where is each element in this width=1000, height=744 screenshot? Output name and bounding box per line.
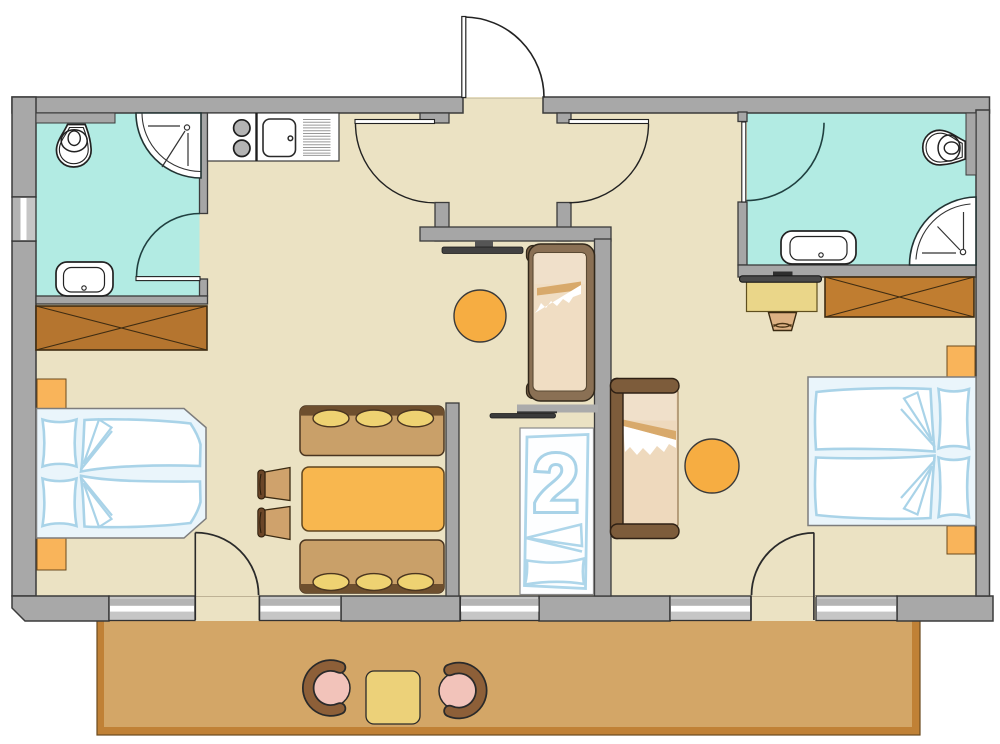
- svg-text:2: 2: [533, 438, 579, 529]
